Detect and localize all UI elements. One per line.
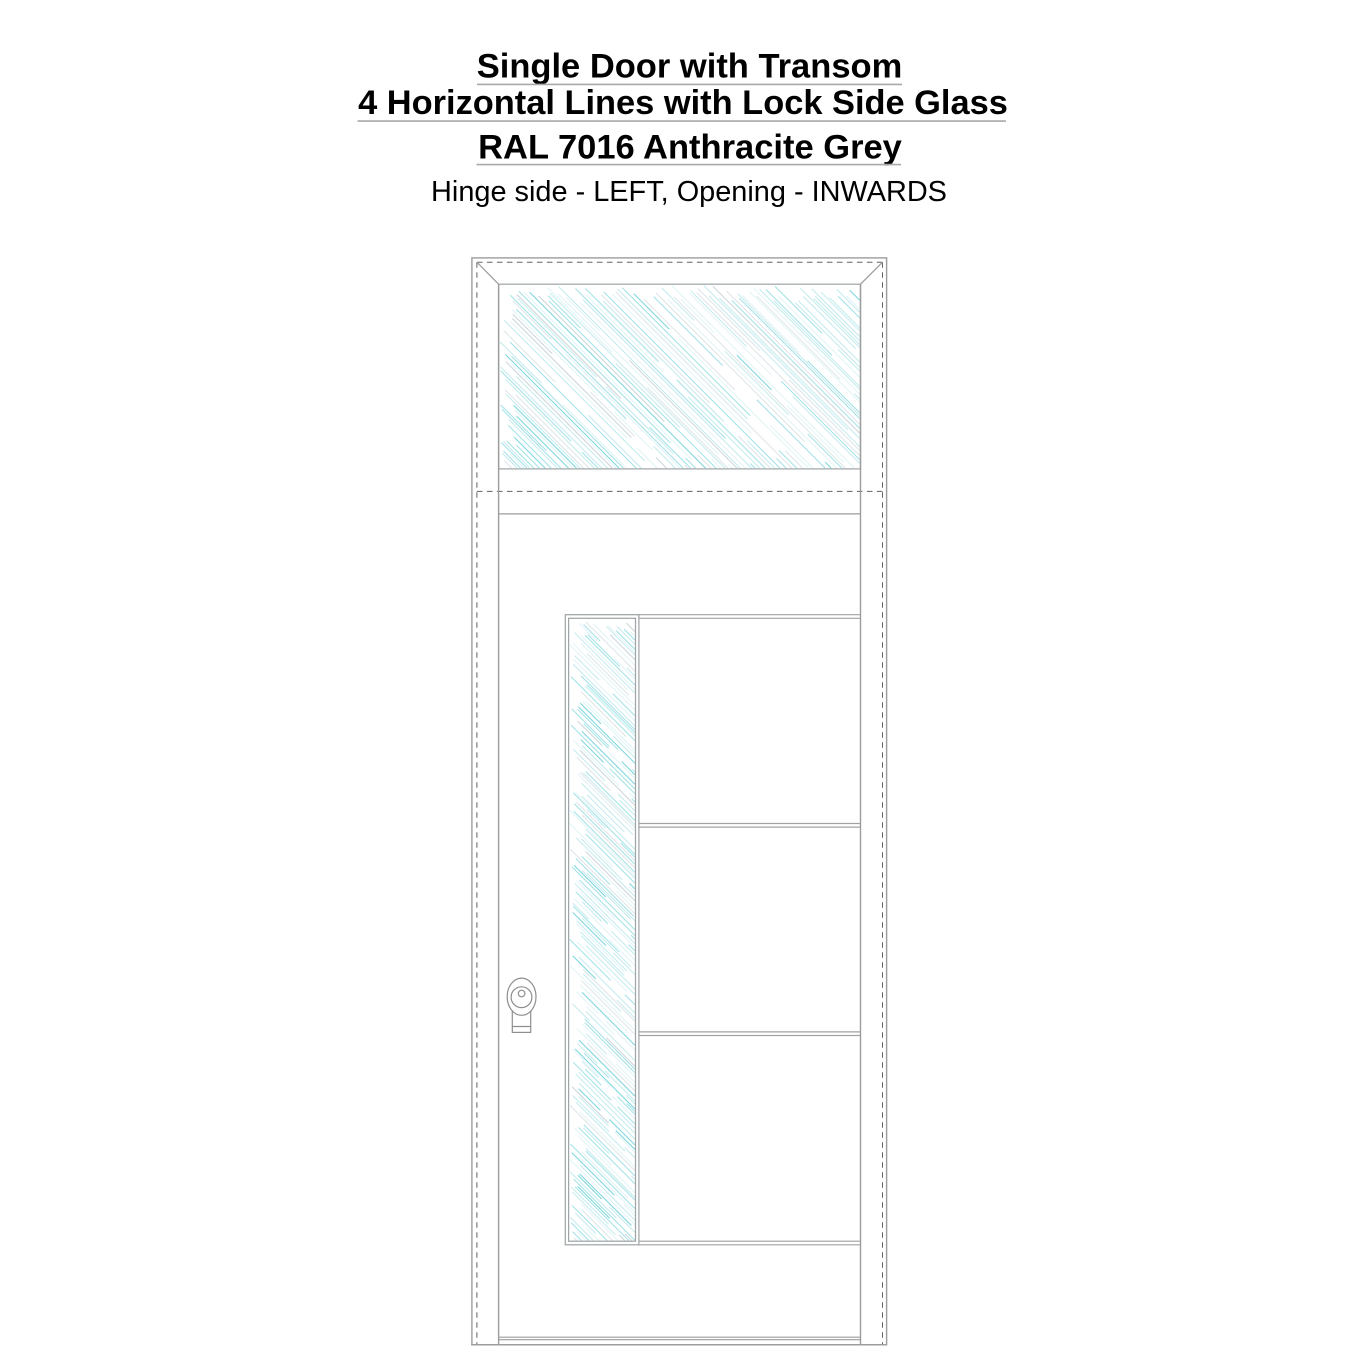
svg-text:Single Door with Transom: Single Door with Transom [477,47,903,85]
svg-text:Hinge side - LEFT, Opening - I: Hinge side - LEFT, Opening - INWARDS [431,176,947,208]
svg-text:RAL 7016 Anthracite Grey: RAL 7016 Anthracite Grey [478,129,902,167]
svg-text:4 Horizontal Lines with Lock S: 4 Horizontal Lines with Lock Side Glass [358,84,1008,122]
